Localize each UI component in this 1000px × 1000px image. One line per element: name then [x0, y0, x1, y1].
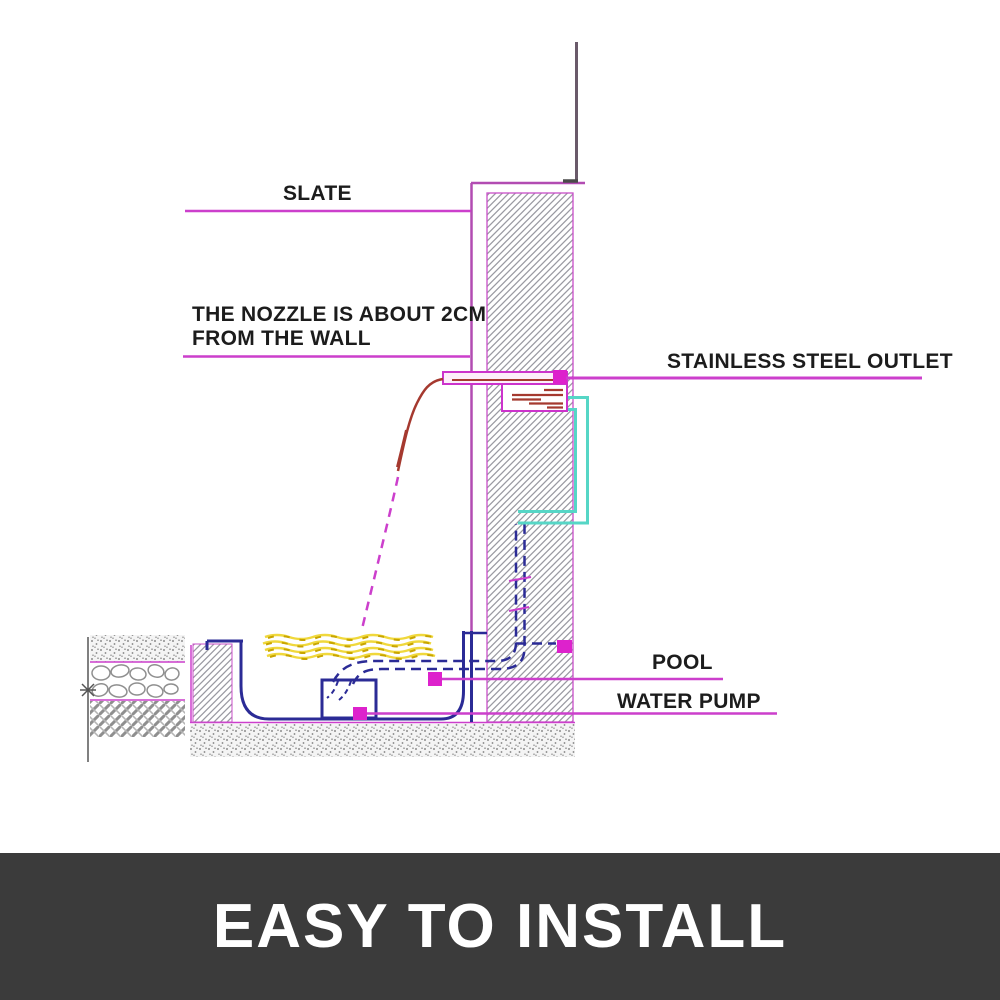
water-wave: [267, 654, 435, 658]
pebble: [164, 666, 180, 681]
stream-solid-inner: [397, 430, 406, 467]
pebble: [164, 684, 178, 694]
pool-left-wall-hatch: [193, 644, 232, 722]
water-wave: [265, 648, 433, 652]
slate-label: SLATE: [283, 182, 352, 206]
pebble-layer: [91, 663, 181, 699]
installation-diagram: [0, 0, 1000, 1000]
pool-leader-dot: [428, 672, 442, 686]
water-wave: [265, 635, 433, 639]
outlet-spout: [443, 372, 567, 384]
pool-right-wall-inner: [441, 631, 464, 719]
pebble: [129, 683, 145, 695]
pipe-exit-dot: [557, 640, 572, 653]
bottom-banner: EASY TO INSTALL: [0, 853, 1000, 1000]
pebble: [146, 683, 164, 699]
banner-title: EASY TO INSTALL: [213, 891, 787, 962]
footing-gravel: [190, 724, 575, 757]
product-image: SLATE THE NOZZLE IS ABOUT 2CM FROM THE W…: [0, 0, 1000, 1000]
pump-inlet-dash: [327, 681, 338, 698]
outlet-leader-dot: [553, 370, 567, 384]
pebble: [110, 664, 130, 679]
subsoil-weave-layer: [90, 701, 185, 737]
stainless-steel-outlet-label: STAINLESS STEEL OUTLET: [667, 350, 953, 374]
water-pump-label: WATER PUMP: [617, 690, 761, 714]
water-wave: [263, 642, 431, 646]
pebble: [108, 684, 128, 699]
stream-dashed-line: [362, 477, 398, 629]
pump-leader-dot: [353, 707, 367, 720]
pool-water-surface: [263, 635, 438, 659]
pool-left-wall-line: [241, 641, 269, 719]
ground-under-pool: [190, 723, 575, 758]
water-stream: [362, 379, 443, 629]
pebble: [129, 667, 147, 681]
outlet-assembly: [443, 370, 567, 411]
pump-inlet-dash: [339, 681, 351, 700]
pool-label: POOL: [652, 651, 713, 675]
ground-left-section: [80, 635, 185, 762]
nozzle-label-line1: THE NOZZLE IS ABOUT 2CM: [192, 303, 486, 327]
pebble: [92, 666, 110, 680]
soil-top-layer: [90, 635, 185, 662]
pebble: [147, 663, 166, 679]
nozzle-label-line2: FROM THE WALL: [192, 327, 371, 351]
stream-solid-line: [398, 379, 443, 471]
